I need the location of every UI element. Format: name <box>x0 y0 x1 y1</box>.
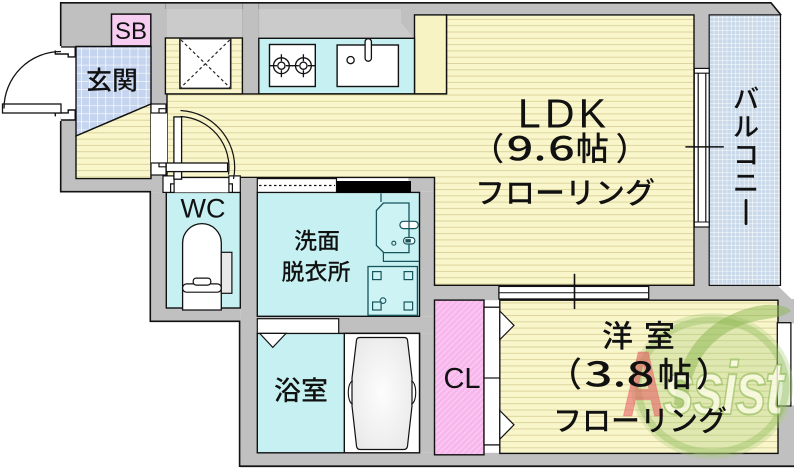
svg-text:WC: WC <box>181 194 226 224</box>
svg-text:CL: CL <box>443 363 480 395</box>
svg-text:LDK: LDK <box>518 91 610 137</box>
svg-text:SB: SB <box>115 18 147 45</box>
